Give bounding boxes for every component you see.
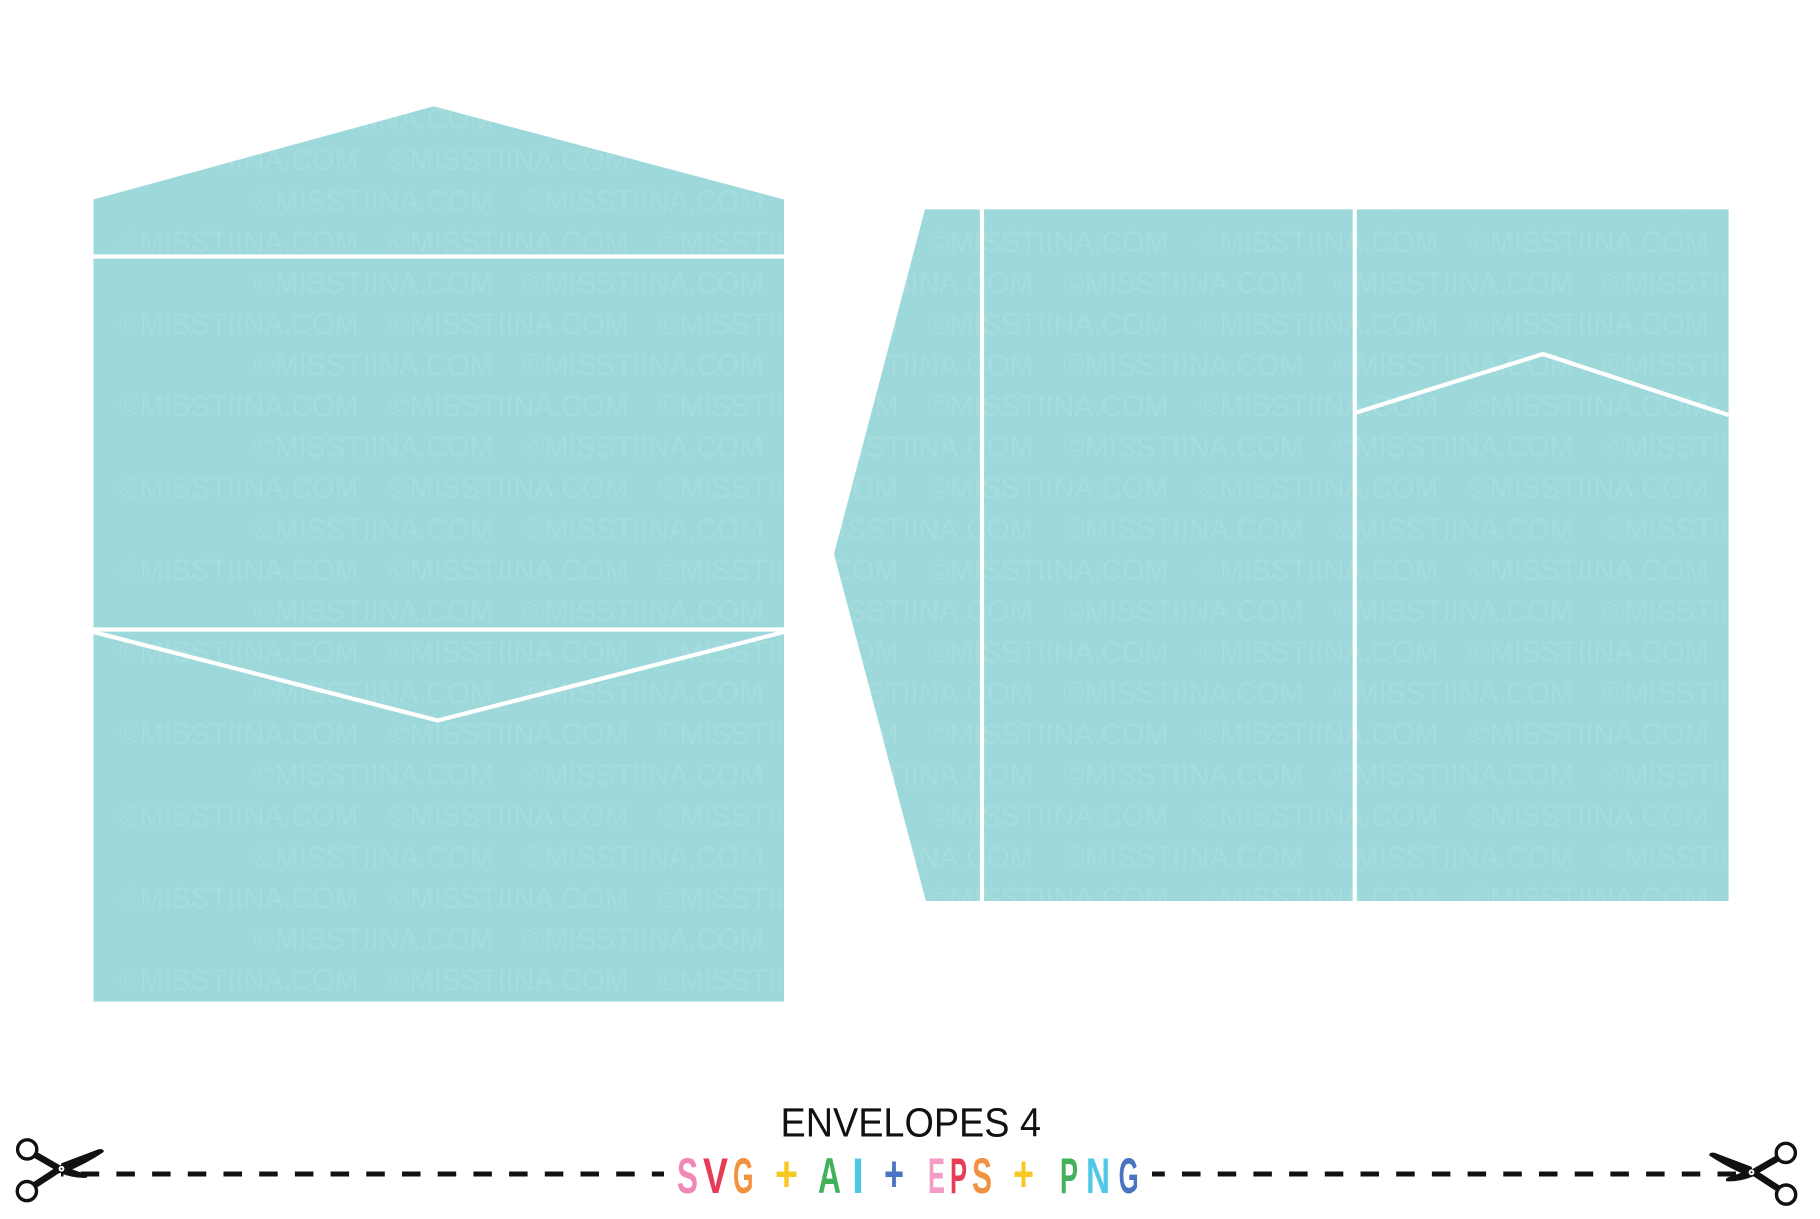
svg-text:©MISSTIINA.COM: ©MISSTIINA.COM [1064, 349, 1304, 382]
svg-text:ENVELOPES 4: ENVELOPES 4 [781, 1100, 1042, 1146]
svg-text:N: N [1086, 1148, 1110, 1204]
svg-text:©MISSTIINA.COM: ©MISSTIINA.COM [254, 513, 494, 546]
svg-text:©MISSTIINA.COM: ©MISSTIINA.COM [254, 923, 494, 956]
svg-text:©MISSTIINA.COM: ©MISSTIINA.COM [659, 636, 899, 669]
svg-text:©MISSTIINA.COM: ©MISSTIINA.COM [389, 390, 629, 423]
svg-text:©MISSTIINA.COM: ©MISSTIINA.COM [659, 554, 899, 587]
svg-text:©MISSTIINA.COM: ©MISSTIINA.COM [389, 472, 629, 505]
svg-text:©MISSTIINA.COM: ©MISSTIINA.COM [1064, 431, 1304, 464]
svg-text:©MISSTIINA.COM: ©MISSTIINA.COM [1199, 800, 1439, 833]
svg-text:©MISSTIINA.COM: ©MISSTIINA.COM [524, 841, 764, 874]
svg-text:©MISSTIINA.COM: ©MISSTIINA.COM [1604, 267, 1820, 300]
svg-text:©MISSTIINA.COM: ©MISSTIINA.COM [794, 841, 1034, 874]
svg-text:©MISSTIINA.COM: ©MISSTIINA.COM [1469, 62, 1709, 95]
svg-text:©MISSTIINA.COM: ©MISSTIINA.COM [929, 390, 1169, 423]
svg-text:©MISSTIINA.COM: ©MISSTIINA.COM [119, 964, 359, 997]
svg-text:©MISSTIINA.COM: ©MISSTIINA.COM [659, 472, 899, 505]
svg-text:©MISSTIINA.COM: ©MISSTIINA.COM [659, 226, 899, 259]
svg-text:©MISSTIINA.COM: ©MISSTIINA.COM [1064, 103, 1304, 136]
svg-text:©MISSTIINA.COM: ©MISSTIINA.COM [1064, 841, 1304, 874]
svg-text:A: A [818, 1148, 841, 1204]
svg-text:©MISSTIINA.COM: ©MISSTIINA.COM [1334, 513, 1574, 546]
svg-text:G: G [733, 1148, 754, 1204]
svg-text:©MISSTIINA.COM: ©MISSTIINA.COM [929, 144, 1169, 177]
svg-text:©MISSTIINA.COM: ©MISSTIINA.COM [1199, 718, 1439, 751]
svg-text:©MISSTIINA.COM: ©MISSTIINA.COM [659, 800, 899, 833]
svg-text:E: E [928, 1148, 945, 1204]
svg-text:©MISSTIINA.COM: ©MISSTIINA.COM [1064, 759, 1304, 792]
svg-text:©MISSTIINA.COM: ©MISSTIINA.COM [1469, 636, 1709, 669]
svg-text:P: P [1060, 1148, 1078, 1204]
svg-text:©MISSTIINA.COM: ©MISSTIINA.COM [1604, 595, 1820, 628]
svg-text:©MISSTIINA.COM: ©MISSTIINA.COM [119, 636, 359, 669]
svg-text:+: + [1013, 1146, 1034, 1202]
svg-text:©MISSTIINA.COM: ©MISSTIINA.COM [1604, 677, 1820, 710]
svg-text:©MISSTIINA.COM: ©MISSTIINA.COM [524, 103, 764, 136]
svg-text:©MISSTIINA.COM: ©MISSTIINA.COM [1469, 144, 1709, 177]
svg-text:©MISSTIINA.COM: ©MISSTIINA.COM [1469, 308, 1709, 341]
svg-text:©MISSTIINA.COM: ©MISSTIINA.COM [1334, 759, 1574, 792]
svg-text:©MISSTIINA.COM: ©MISSTIINA.COM [1199, 964, 1439, 997]
svg-text:+: + [775, 1146, 798, 1202]
svg-text:©MISSTIINA.COM: ©MISSTIINA.COM [119, 308, 359, 341]
svg-text:©MISSTIINA.COM: ©MISSTIINA.COM [389, 554, 629, 587]
svg-text:©MISSTIINA.COM: ©MISSTIINA.COM [794, 103, 1034, 136]
svg-text:©MISSTIINA.COM: ©MISSTIINA.COM [1604, 923, 1820, 956]
svg-text:©MISSTIINA.COM: ©MISSTIINA.COM [794, 923, 1034, 956]
svg-text:©MISSTIINA.COM: ©MISSTIINA.COM [1199, 636, 1439, 669]
svg-text:©MISSTIINA.COM: ©MISSTIINA.COM [119, 226, 359, 259]
svg-text:©MISSTIINA.COM: ©MISSTIINA.COM [389, 964, 629, 997]
svg-text:©MISSTIINA.COM: ©MISSTIINA.COM [1199, 62, 1439, 95]
svg-text:S: S [677, 1148, 698, 1204]
svg-text:©MISSTIINA.COM: ©MISSTIINA.COM [389, 636, 629, 669]
svg-text:©MISSTIINA.COM: ©MISSTIINA.COM [929, 800, 1169, 833]
svg-text:©MISSTIINA.COM: ©MISSTIINA.COM [524, 185, 764, 218]
svg-text:©MISSTIINA.COM: ©MISSTIINA.COM [1334, 677, 1574, 710]
svg-text:©MISSTIINA.COM: ©MISSTIINA.COM [1469, 800, 1709, 833]
svg-text:©MISSTIINA.COM: ©MISSTIINA.COM [119, 144, 359, 177]
svg-text:©MISSTIINA.COM: ©MISSTIINA.COM [929, 554, 1169, 587]
svg-text:©MISSTIINA.COM: ©MISSTIINA.COM [524, 595, 764, 628]
svg-text:V: V [703, 1148, 728, 1204]
svg-text:©MISSTIINA.COM: ©MISSTIINA.COM [389, 800, 629, 833]
svg-text:©MISSTIINA.COM: ©MISSTIINA.COM [524, 349, 764, 382]
svg-text:©MISSTIINA.COM: ©MISSTIINA.COM [929, 718, 1169, 751]
svg-text:©MISSTIINA.COM: ©MISSTIINA.COM [1199, 226, 1439, 259]
svg-text:©MISSTIINA.COM: ©MISSTIINA.COM [1334, 431, 1574, 464]
svg-text:©MISSTIINA.COM: ©MISSTIINA.COM [1604, 185, 1820, 218]
svg-text:©MISSTIINA.COM: ©MISSTIINA.COM [254, 185, 494, 218]
svg-text:+: + [884, 1146, 904, 1202]
svg-text:©MISSTIINA.COM: ©MISSTIINA.COM [794, 431, 1034, 464]
svg-text:©MISSTIINA.COM: ©MISSTIINA.COM [524, 759, 764, 792]
svg-text:©MISSTIINA.COM: ©MISSTIINA.COM [119, 62, 359, 95]
svg-text:©MISSTIINA.COM: ©MISSTIINA.COM [794, 595, 1034, 628]
svg-text:©MISSTIINA.COM: ©MISSTIINA.COM [524, 513, 764, 546]
svg-text:©MISSTIINA.COM: ©MISSTIINA.COM [659, 964, 899, 997]
svg-text:©MISSTIINA.COM: ©MISSTIINA.COM [659, 882, 899, 915]
svg-text:©MISSTIINA.COM: ©MISSTIINA.COM [659, 144, 899, 177]
svg-text:©MISSTIINA.COM: ©MISSTIINA.COM [1334, 841, 1574, 874]
svg-text:©MISSTIINA.COM: ©MISSTIINA.COM [254, 103, 494, 136]
svg-text:©MISSTIINA.COM: ©MISSTIINA.COM [929, 964, 1169, 997]
svg-text:©MISSTIINA.COM: ©MISSTIINA.COM [1469, 472, 1709, 505]
svg-text:©MISSTIINA.COM: ©MISSTIINA.COM [929, 308, 1169, 341]
svg-text:S: S [972, 1148, 992, 1204]
svg-text:©MISSTIINA.COM: ©MISSTIINA.COM [254, 595, 494, 628]
svg-text:©MISSTIINA.COM: ©MISSTIINA.COM [794, 349, 1034, 382]
svg-text:©MISSTIINA.COM: ©MISSTIINA.COM [1064, 923, 1304, 956]
svg-text:©MISSTIINA.COM: ©MISSTIINA.COM [1334, 923, 1574, 956]
svg-text:©MISSTIINA.COM: ©MISSTIINA.COM [1199, 472, 1439, 505]
svg-text:©MISSTIINA.COM: ©MISSTIINA.COM [119, 800, 359, 833]
svg-text:©MISSTIINA.COM: ©MISSTIINA.COM [929, 882, 1169, 915]
svg-text:©MISSTIINA.COM: ©MISSTIINA.COM [659, 718, 899, 751]
svg-text:©MISSTIINA.COM: ©MISSTIINA.COM [1334, 103, 1574, 136]
svg-text:©MISSTIINA.COM: ©MISSTIINA.COM [254, 759, 494, 792]
svg-text:©MISSTIINA.COM: ©MISSTIINA.COM [1604, 841, 1820, 874]
svg-text:©MISSTIINA.COM: ©MISSTIINA.COM [659, 390, 899, 423]
svg-text:I: I [852, 1148, 864, 1204]
svg-text:P: P [950, 1148, 967, 1204]
svg-text:©MISSTIINA.COM: ©MISSTIINA.COM [1064, 595, 1304, 628]
svg-text:©MISSTIINA.COM: ©MISSTIINA.COM [1199, 554, 1439, 587]
svg-text:©MISSTIINA.COM: ©MISSTIINA.COM [1469, 718, 1709, 751]
svg-text:©MISSTIINA.COM: ©MISSTIINA.COM [1199, 882, 1439, 915]
svg-text:©MISSTIINA.COM: ©MISSTIINA.COM [119, 554, 359, 587]
svg-text:©MISSTIINA.COM: ©MISSTIINA.COM [929, 472, 1169, 505]
svg-text:©MISSTIINA.COM: ©MISSTIINA.COM [1199, 390, 1439, 423]
svg-text:G: G [1119, 1148, 1139, 1204]
svg-text:©MISSTIINA.COM: ©MISSTIINA.COM [794, 267, 1034, 300]
svg-text:©MISSTIINA.COM: ©MISSTIINA.COM [1469, 882, 1709, 915]
svg-text:©MISSTIINA.COM: ©MISSTIINA.COM [794, 185, 1034, 218]
svg-text:©MISSTIINA.COM: ©MISSTIINA.COM [929, 226, 1169, 259]
svg-text:©MISSTIINA.COM: ©MISSTIINA.COM [524, 431, 764, 464]
svg-text:©MISSTIINA.COM: ©MISSTIINA.COM [1604, 431, 1820, 464]
svg-text:©MISSTIINA.COM: ©MISSTIINA.COM [389, 226, 629, 259]
svg-text:©MISSTIINA.COM: ©MISSTIINA.COM [254, 267, 494, 300]
svg-text:©MISSTIINA.COM: ©MISSTIINA.COM [119, 882, 359, 915]
svg-text:©MISSTIINA.COM: ©MISSTIINA.COM [119, 390, 359, 423]
svg-text:©MISSTIINA.COM: ©MISSTIINA.COM [389, 882, 629, 915]
svg-text:©MISSTIINA.COM: ©MISSTIINA.COM [389, 62, 629, 95]
svg-text:©MISSTIINA.COM: ©MISSTIINA.COM [794, 759, 1034, 792]
svg-text:©MISSTIINA.COM: ©MISSTIINA.COM [389, 308, 629, 341]
svg-text:©MISSTIINA.COM: ©MISSTIINA.COM [794, 677, 1034, 710]
svg-text:©MISSTIINA.COM: ©MISSTIINA.COM [1604, 513, 1820, 546]
svg-text:©MISSTIINA.COM: ©MISSTIINA.COM [254, 841, 494, 874]
svg-text:©MISSTIINA.COM: ©MISSTIINA.COM [1064, 513, 1304, 546]
svg-text:©MISSTIINA.COM: ©MISSTIINA.COM [1469, 226, 1709, 259]
svg-text:©MISSTIINA.COM: ©MISSTIINA.COM [659, 308, 899, 341]
svg-text:©MISSTIINA.COM: ©MISSTIINA.COM [1064, 267, 1304, 300]
svg-text:©MISSTIINA.COM: ©MISSTIINA.COM [1604, 759, 1820, 792]
svg-text:©MISSTIINA.COM: ©MISSTIINA.COM [929, 636, 1169, 669]
svg-text:©MISSTIINA.COM: ©MISSTIINA.COM [1334, 185, 1574, 218]
svg-text:©MISSTIINA.COM: ©MISSTIINA.COM [524, 677, 764, 710]
svg-text:©MISSTIINA.COM: ©MISSTIINA.COM [389, 144, 629, 177]
svg-text:©MISSTIINA.COM: ©MISSTIINA.COM [389, 718, 629, 751]
svg-text:©MISSTIINA.COM: ©MISSTIINA.COM [794, 513, 1034, 546]
svg-text:©MISSTIINA.COM: ©MISSTIINA.COM [119, 718, 359, 751]
svg-text:©MISSTIINA.COM: ©MISSTIINA.COM [659, 62, 899, 95]
svg-text:©MISSTIINA.COM: ©MISSTIINA.COM [1199, 308, 1439, 341]
svg-text:©MISSTIINA.COM: ©MISSTIINA.COM [1064, 677, 1304, 710]
svg-text:©MISSTIINA.COM: ©MISSTIINA.COM [1199, 144, 1439, 177]
svg-text:©MISSTIINA.COM: ©MISSTIINA.COM [1469, 554, 1709, 587]
svg-text:©MISSTIINA.COM: ©MISSTIINA.COM [254, 677, 494, 710]
svg-text:©MISSTIINA.COM: ©MISSTIINA.COM [1064, 185, 1304, 218]
svg-text:©MISSTIINA.COM: ©MISSTIINA.COM [1334, 267, 1574, 300]
svg-text:©MISSTIINA.COM: ©MISSTIINA.COM [254, 431, 494, 464]
svg-text:©MISSTIINA.COM: ©MISSTIINA.COM [1469, 964, 1709, 997]
svg-text:©MISSTIINA.COM: ©MISSTIINA.COM [929, 62, 1169, 95]
svg-text:©MISSTIINA.COM: ©MISSTIINA.COM [1334, 595, 1574, 628]
svg-text:©MISSTIINA.COM: ©MISSTIINA.COM [524, 267, 764, 300]
svg-text:©MISSTIINA.COM: ©MISSTIINA.COM [1604, 349, 1820, 382]
svg-text:©MISSTIINA.COM: ©MISSTIINA.COM [1604, 103, 1820, 136]
svg-text:©MISSTIINA.COM: ©MISSTIINA.COM [119, 472, 359, 505]
svg-text:©MISSTIINA.COM: ©MISSTIINA.COM [524, 923, 764, 956]
svg-text:©MISSTIINA.COM: ©MISSTIINA.COM [254, 349, 494, 382]
